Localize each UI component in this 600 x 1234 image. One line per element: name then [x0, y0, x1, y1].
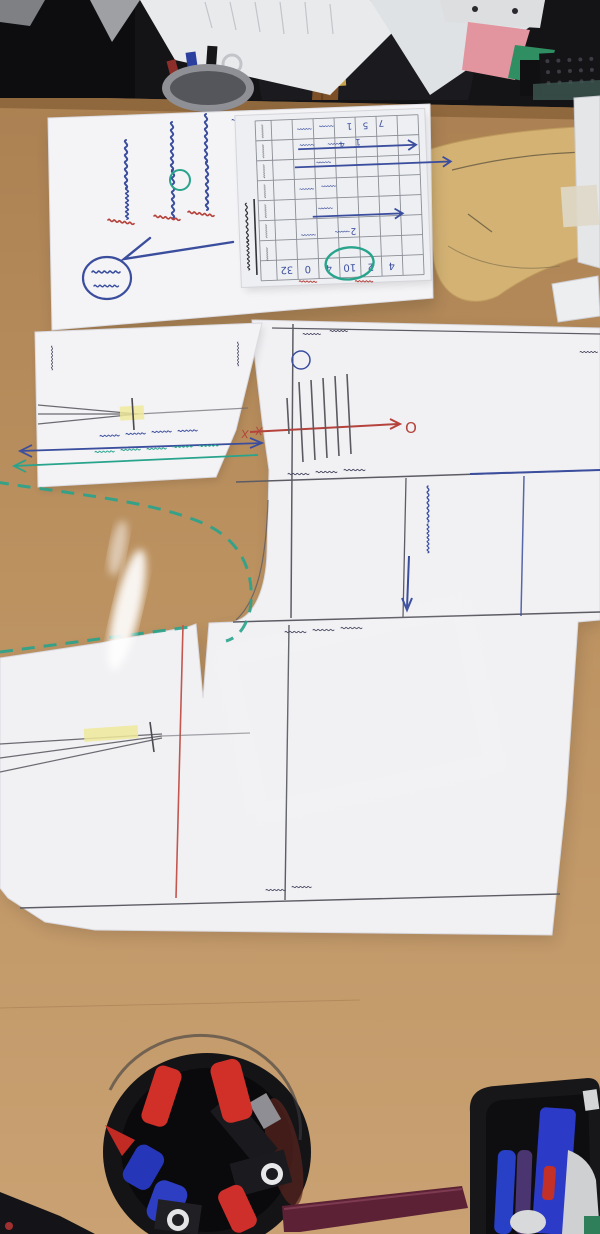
white-scrap: [552, 276, 600, 322]
pen-tray: [470, 1078, 600, 1234]
form-digit: 2: [350, 225, 356, 235]
white-item-2: [510, 1210, 546, 1234]
white-strip: [574, 96, 600, 268]
form-digit: 4: [339, 138, 345, 148]
form-cell-value: 0: [304, 263, 311, 274]
scene-svg: 1 5 7 1 4 2 32 0 4 10 2 4: [0, 0, 600, 1234]
form-digit: 1: [346, 120, 352, 130]
form-cell-value: 4: [388, 260, 395, 271]
corner-red-dot: [5, 1222, 13, 1230]
o-mark: O: [405, 418, 417, 436]
form-digit: 7: [378, 117, 384, 127]
form-cell-value: 32: [280, 264, 293, 275]
form-digit: 5: [362, 120, 368, 130]
marker-logo-core: [266, 1168, 278, 1180]
masking-tape: [561, 185, 600, 227]
top-shelf-clutter: [0, 0, 600, 120]
green-item: [584, 1216, 600, 1234]
red-pen-small: [542, 1166, 556, 1201]
schedule-form: 1 5 7 1 4 2 32 0 4 10 2 4: [235, 107, 456, 291]
form-digit: 1: [355, 136, 361, 146]
far-pen-cup-inner: [170, 71, 246, 105]
form-cell-value: 10: [343, 261, 356, 272]
white-item-3: [583, 1089, 600, 1111]
binder-hole: [472, 6, 478, 12]
binder-hole-2: [512, 8, 518, 14]
photo-canvas: 1 5 7 1 4 2 32 0 4 10 2 4: [0, 0, 600, 1234]
marker-logo-core-2: [172, 1214, 184, 1226]
